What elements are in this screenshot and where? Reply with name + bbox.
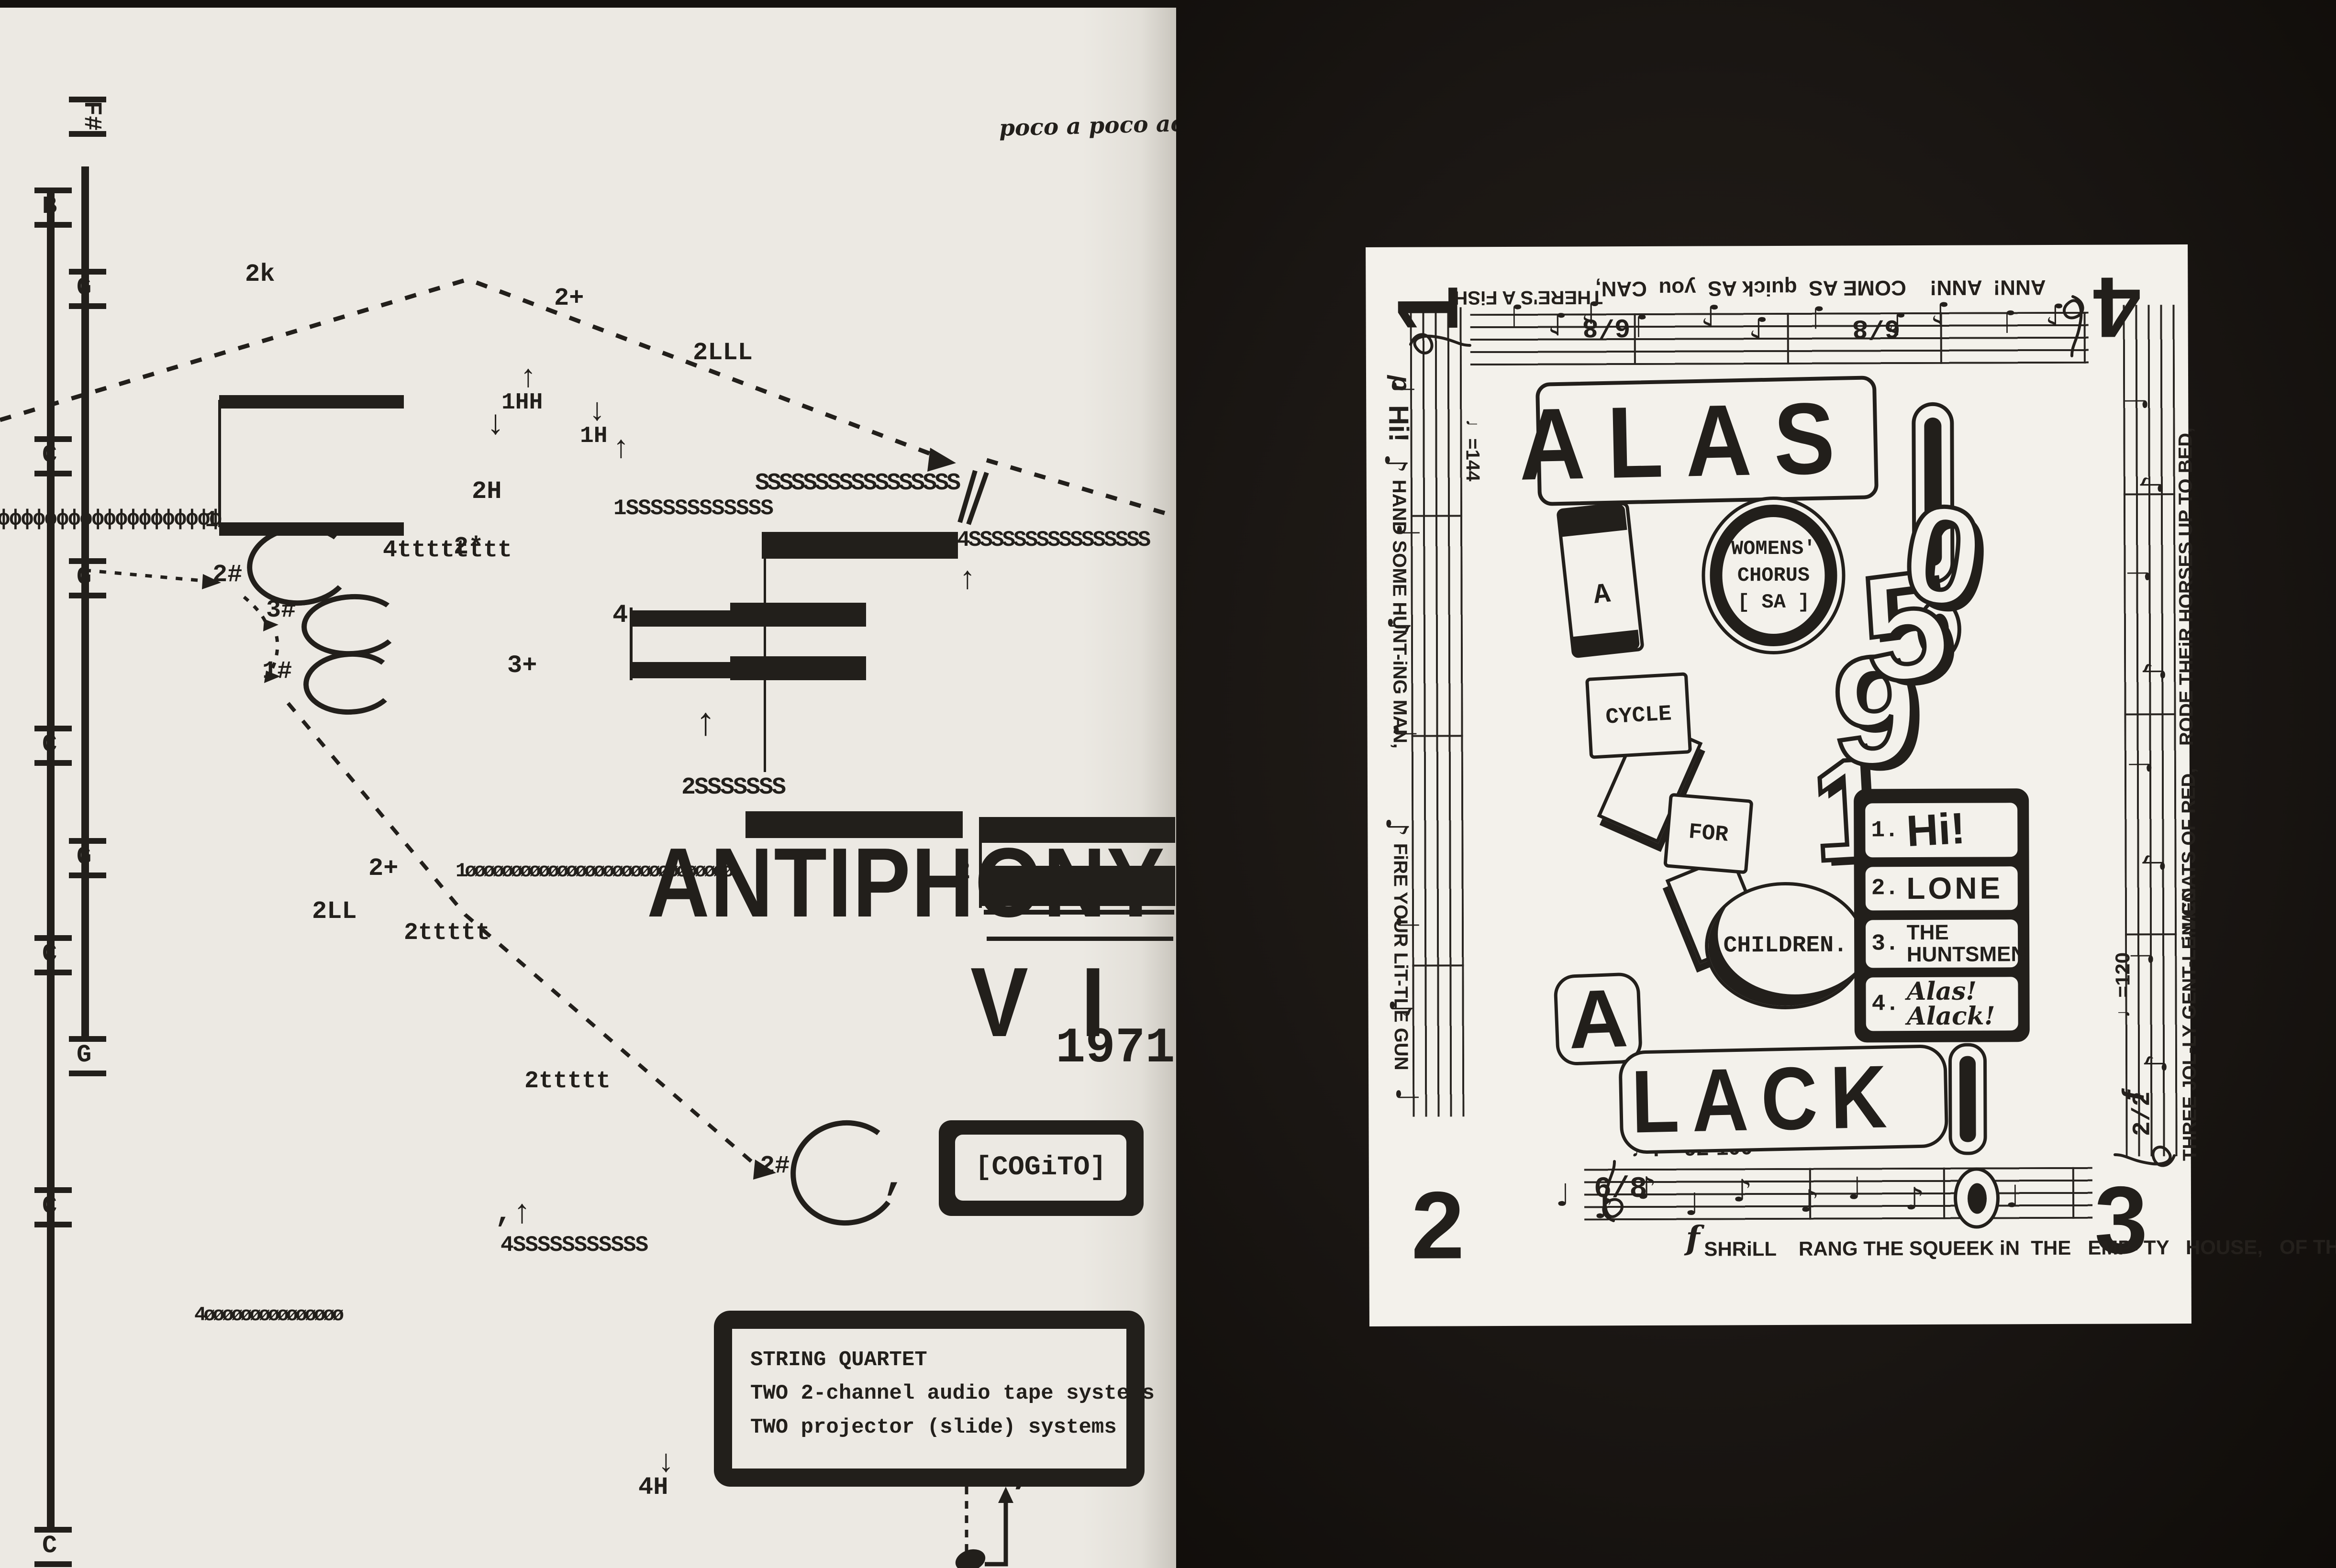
label-2s-row: 2SSSSSSS: [681, 776, 785, 800]
dynamic-left-staff: p: [1388, 375, 1414, 391]
barline: [1412, 964, 1464, 966]
label-4h: 4H: [638, 1475, 668, 1500]
pitch-tick: [69, 131, 106, 137]
label-1hh: 1HH: [501, 391, 543, 414]
lyrics-bottom-staff: SHRiLL RANG THE SQUEEK iN THE EMP- TY HO…: [1704, 1237, 2336, 1259]
chorus-circle: WOMENS' CHORUS [ SA ]: [1702, 497, 1846, 655]
barline: [1943, 1168, 1945, 1219]
note-glyph: ♩: [2122, 396, 2152, 410]
label-4-bars: 4: [612, 603, 628, 629]
barline: [1634, 313, 1636, 365]
for-word: FOR: [1688, 819, 1729, 848]
phi-row: ϕϕϕϕϕϕϕϕϕϕϕϕϕϕϕϕϕϕϕ: [0, 508, 221, 530]
label-1h: 1H: [580, 425, 608, 448]
bracket-top-bar: [219, 395, 404, 409]
children-word: CHILDREN.: [1723, 933, 1847, 959]
barline: [1412, 735, 1463, 737]
note-glyph: ♪: [2141, 1054, 2171, 1073]
note-glyph: ♩: [1391, 1088, 1422, 1102]
note-glyph: ♪: [2045, 298, 2065, 329]
lyrics-top-staff: ANN! ANN! COME AS quick AS you CAN,: [1595, 276, 2046, 299]
label-1sharp: 1#: [262, 659, 292, 684]
note-glyph: ♪: [1733, 1176, 1752, 1206]
page-top-shadow: [0, 0, 1176, 8]
pitch-tick: [69, 593, 106, 598]
pitch-tick: [34, 222, 72, 228]
chorus-line-1: WOMENS': [1731, 537, 1816, 561]
pitch-letter-g: G: [77, 276, 91, 300]
label-1s-row: 1SSSSSSSSSSSS: [613, 497, 773, 519]
note-glyph: ♩: [2125, 568, 2155, 583]
arrow-up-icon: ↑: [958, 564, 977, 596]
right-page-black-backdrop: ♩♪♪♩♪♪♩♪♪♩♪♩♪♪♩♪♪♩♪♪♩♩♪♩♪♩♪♩♪♩♩♪♩♪♩♪♩♪ 1…: [1176, 0, 2336, 1568]
barline: [2084, 312, 2086, 364]
time-signature-top: 6/8: [1582, 313, 1631, 340]
note-glyph: ♩: [1811, 301, 1825, 332]
pitch-tick: [34, 471, 72, 476]
four-bar-top-b: [730, 603, 866, 627]
label-3sharp: 3#: [266, 598, 296, 623]
note-glyph: ♪: [2140, 662, 2170, 681]
tempo-right-staff: ♩=120: [2113, 952, 2133, 1018]
time-signature-right: 2/2: [2130, 1092, 2155, 1137]
alas-title-box: ALAS: [1535, 375, 1879, 506]
tempo-left-staff: ♩=144: [1463, 419, 1482, 481]
song-list-item-4: 4.Alas!Alack!: [1863, 974, 2020, 1033]
label-s-row: SSSSSSSSSSSSSSSSS: [755, 472, 958, 496]
lack-word-box: LACK: [1618, 1044, 1948, 1154]
label-2ll: 2LL: [312, 899, 357, 924]
book-spread: BCCCCCF#GGGG 2k2+2LLL↓2H2*↑1HH↓1H↑1SSSSS…: [0, 0, 2336, 1568]
pitch-tick: [34, 1561, 72, 1567]
lack-a-letter: A: [1567, 977, 1629, 1061]
score-cover-card: ♩♪♪♩♪♪♩♪♪♩♪♩♪♪♩♪♪♩♪♪♩♩♪♩♪♩♪♩♪♩♩♪♩♪♩♪♩♪ 1…: [1366, 244, 2191, 1326]
barline: [1787, 313, 1789, 364]
song-list-item-1: 1.Hi!: [1863, 800, 2020, 860]
label-2sharp-a: 2#: [212, 563, 242, 587]
song-title: LONE: [1906, 871, 2003, 906]
song-title: Alas!Alack!: [1907, 979, 1995, 1029]
song-title: THEHUNTSMEN: [1907, 921, 2026, 966]
note-glyph: ♩: [1685, 1190, 1699, 1220]
pitch-tick: [34, 970, 72, 975]
note-glyph: ♩: [1634, 309, 1648, 340]
chorus-line-3: [ SA ]: [1737, 591, 1810, 614]
label-3plus: 3+: [507, 653, 537, 678]
time-signature-top-2: 6/8: [1852, 314, 1901, 341]
barline: [2124, 493, 2175, 495]
pitch-letter-c: C: [42, 942, 57, 967]
song-number: 4.: [1872, 991, 1900, 1017]
pitch-letter-g: G: [77, 1043, 91, 1068]
phi-row-end: 1: [205, 509, 219, 532]
barline: [2124, 713, 2176, 715]
note-glyph: ♩: [1556, 1181, 1570, 1211]
four-bar-side: [630, 607, 633, 680]
lack-word: LACK: [1630, 1052, 1900, 1147]
cogito-label: [COGiTO]: [955, 1135, 1126, 1201]
label-2plus-mid: 2+: [368, 856, 398, 881]
label-2h: 2H: [472, 479, 501, 504]
cogito-box: [COGiTO]: [939, 1120, 1144, 1216]
chorus-line-2: CHORUS: [1737, 564, 1810, 587]
note-glyph: ♪: [1380, 453, 1411, 473]
song-list-item-3: 3.THEHUNTSMEN: [1863, 917, 2020, 971]
children-circle: CHILDREN.: [1705, 882, 1866, 1009]
open-ellipse-3: [302, 649, 399, 717]
lack-bang-dot: [1954, 1167, 2000, 1228]
arrow-up-icon: ↑: [612, 433, 631, 465]
pitch-tick: [34, 1222, 72, 1227]
note-glyph: ♪: [1548, 308, 1568, 339]
lyrics-left-staff-1: HAND SOME HUNT-iNG MAN,: [1390, 480, 1410, 749]
note-glyph: ♪: [1749, 312, 1769, 342]
note-glyph: ♪: [1701, 299, 1720, 330]
pitch-letter-b: B: [42, 194, 57, 219]
lyrics-left-staff-2: FiRE YOUR LiT-TLE GUN: [1390, 843, 1411, 1071]
barline: [2125, 933, 2177, 935]
arrow-up-icon: ↑: [512, 1198, 532, 1231]
note-glyph: ♪: [2137, 475, 2168, 495]
song-list-box: 1.Hi!2.LONE3.THEHUNTSMEN4.Alas!Alack!: [1854, 788, 2030, 1042]
note-glyph: ♪: [1905, 1184, 1924, 1215]
cycle-word: CYCLE: [1605, 701, 1672, 730]
song-list-item-2: 2.LONE: [1863, 864, 2020, 913]
lyrics-top-staff-left: THERE'S A FiSH: [1454, 287, 1602, 307]
arrow-up-icon: ↑: [694, 705, 717, 744]
year-digit-0: 0: [1895, 482, 1991, 629]
alas-word: ALAS: [1518, 387, 1858, 496]
song-number: 1.: [1871, 817, 1899, 843]
label-4o-row: 4øøøøøøøøøøøøøøø: [194, 1305, 341, 1325]
label-2lll: 2LLL: [693, 341, 753, 365]
lyrics-right-staff-1: RODE THEiR HORSES UP TO BED,: [2176, 428, 2196, 746]
banner-a-tile: A: [1556, 501, 1645, 659]
pitch-letter-c: C: [42, 1534, 57, 1558]
note-glyph: ♪: [2139, 853, 2170, 872]
label-4t-row: 4tttttttt: [383, 539, 512, 563]
pitch-tick: [69, 303, 106, 309]
pitch-letter-c: C: [42, 732, 57, 757]
barline: [1940, 312, 1942, 364]
instrumentation-text: STRING QUARTET TWO 2-channel audio tape …: [750, 1343, 1155, 1444]
song-number: 3.: [1871, 931, 1899, 957]
staff-left: [1410, 307, 1465, 1116]
comma-glyph: ,: [882, 1157, 907, 1198]
comma-glyph: ,: [495, 1199, 512, 1228]
for-tile: FOR: [1663, 793, 1753, 874]
note-glyph: ♩: [2126, 760, 2157, 774]
corner-number-2: 2: [1411, 1178, 1465, 1273]
cycle-tile: CYCLE: [1585, 672, 1692, 759]
left-page-graphic-score: BCCCCCF#GGGG 2k2+2LLL↓2H2*↑1HH↓1H↑1SSSSS…: [0, 0, 1176, 1568]
barline: [1809, 1168, 1811, 1220]
note-glyph: ♪: [1381, 817, 1412, 837]
label-4s-row: 4SSSSSSSSSSSSSSSS: [957, 529, 1149, 551]
song-title: Hi!: [1905, 804, 1966, 857]
time-signature-bottom: 6/8: [1594, 1174, 1647, 1204]
pitch-letter-f#: F#: [79, 101, 104, 131]
staff-right: [2123, 305, 2177, 1156]
corner-number-4: 4: [2093, 264, 2141, 350]
pitch-letter-g: G: [77, 565, 91, 590]
dynamic-bottom-staff: f: [1686, 1222, 1700, 1255]
pitch-tick: [69, 872, 106, 878]
pitch-tick: [69, 1071, 106, 1076]
pitch-letter-c: C: [42, 443, 57, 468]
four-bar-bottom-a: [631, 662, 732, 678]
pitch-axis-left-line: [47, 189, 55, 1532]
label-2plus-top: 2+: [554, 286, 584, 311]
note-glyph: ♩: [2002, 305, 2016, 336]
barline: [2072, 1167, 2074, 1219]
song-number: 2.: [1871, 875, 1899, 901]
label-2t-row-b: 2ttttt: [524, 1070, 611, 1093]
instrumentation-box: STRING QUARTET TWO 2-channel audio tape …: [714, 1311, 1145, 1487]
lyrics-right-staff-3: THREE JOL-LY GENT-LE-MEN: [2180, 888, 2200, 1161]
lack-bang-bar: [1948, 1043, 1987, 1155]
cue-hi: Hi!: [1384, 405, 1412, 442]
banner-a-letter: A: [1568, 576, 1636, 615]
label-2sharp-b: 2#: [760, 1154, 790, 1179]
four-bar-bottom-b: [730, 656, 866, 680]
duration-bar-1: [762, 532, 958, 559]
label-4s-row-b: 4SSSSSSSSSSS: [501, 1234, 647, 1256]
note-glyph: ♩: [1847, 1173, 1862, 1204]
four-bar-top-a: [631, 610, 732, 627]
label-2t-row-a: 2ttttt: [404, 921, 490, 945]
lack-a-blob: A: [1553, 972, 1643, 1066]
staff-notes-decor: ♩♪♪♩♪♪♩♪♪♩♪♩♪♪♩♪♪♩♪♪♩♩♪♩♪♩♪♩♪♩♩♪♩♪♩♪♩♪: [1366, 244, 2188, 247]
work-year: 1971: [1056, 1024, 1175, 1073]
pitch-tick: [34, 760, 72, 766]
pitch-letter-c: C: [42, 1194, 57, 1219]
pitch-letter-g: G: [77, 845, 91, 870]
barline: [1411, 515, 1462, 517]
label-2k: 2k: [245, 262, 275, 287]
note-glyph: ♩: [2005, 1182, 2020, 1212]
work-title-line1: ANTIPHONY: [647, 833, 1165, 932]
